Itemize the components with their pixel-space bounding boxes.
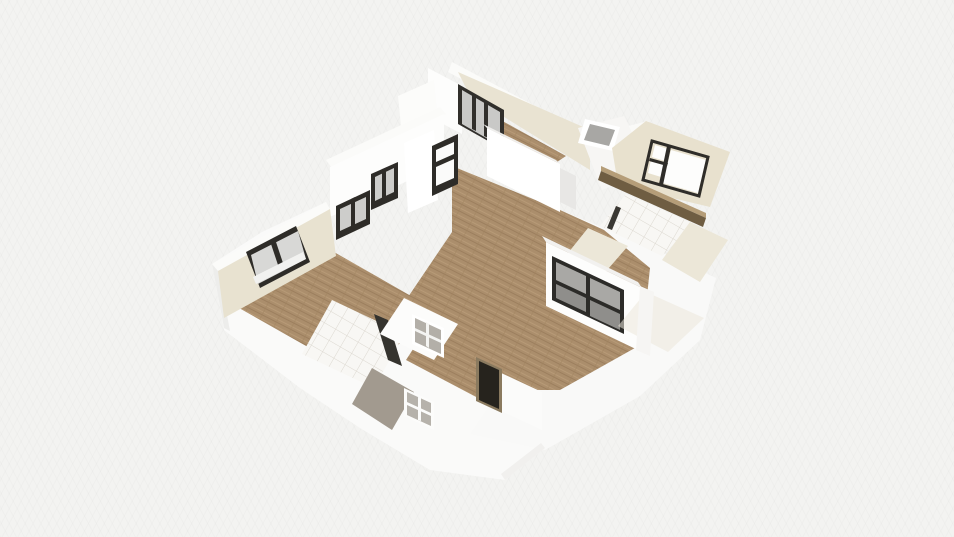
kitchen-window-a-mullion[interactable] xyxy=(351,197,355,227)
glass-panel-bar-v[interactable] xyxy=(426,322,429,348)
bottom-window-bar-v[interactable] xyxy=(418,397,421,421)
partition-doorway-gap[interactable] xyxy=(560,168,576,210)
kitchen-window-b-mullion[interactable] xyxy=(382,169,386,199)
top-room-window-mullion-a[interactable] xyxy=(472,95,476,131)
floorplan-scene xyxy=(0,0,954,537)
floorplan-3d-viewport[interactable] xyxy=(0,0,954,537)
